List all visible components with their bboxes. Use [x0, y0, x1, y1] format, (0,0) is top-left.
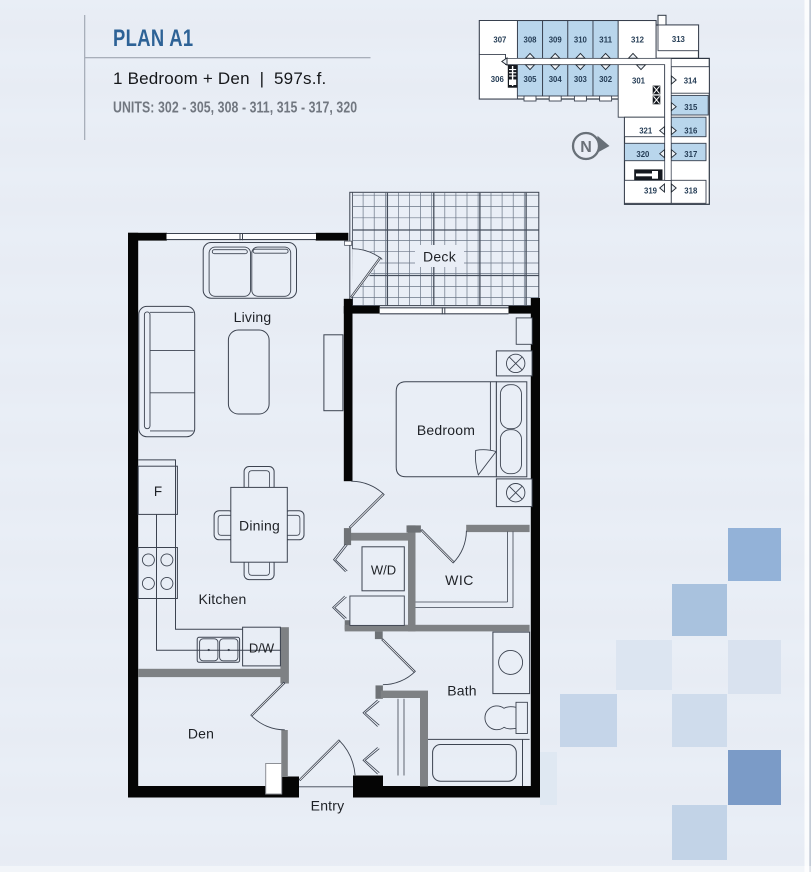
svg-text:310: 310 — [574, 35, 587, 45]
svg-text:309: 309 — [549, 35, 562, 45]
svg-text:311: 311 — [599, 35, 612, 45]
svg-text:320: 320 — [636, 149, 649, 159]
svg-text:Kitchen: Kitchen — [198, 591, 246, 607]
svg-text:UNITS: 302 - 305, 308 - 311, 3: UNITS: 302 - 305, 308 - 311, 315 - 317, … — [113, 99, 357, 117]
svg-text:N: N — [580, 139, 592, 156]
svg-text:307: 307 — [493, 35, 506, 45]
svg-text:F: F — [154, 484, 162, 499]
svg-text:321: 321 — [639, 126, 652, 136]
svg-text:Deck: Deck — [423, 249, 457, 265]
svg-text:313: 313 — [672, 34, 685, 44]
svg-text:Living: Living — [234, 309, 272, 325]
svg-text:301: 301 — [632, 75, 645, 85]
svg-text:308: 308 — [524, 35, 537, 45]
svg-text:Bedroom: Bedroom — [417, 422, 475, 438]
svg-text:318: 318 — [684, 185, 697, 195]
svg-text:W/D: W/D — [371, 563, 396, 578]
svg-text:305: 305 — [524, 74, 537, 84]
svg-text:314: 314 — [684, 75, 697, 85]
svg-text:319: 319 — [644, 185, 657, 195]
svg-text:D/W: D/W — [249, 641, 275, 656]
svg-text:Dining: Dining — [239, 518, 280, 534]
svg-text:304: 304 — [549, 74, 562, 84]
svg-text:316: 316 — [684, 126, 697, 136]
svg-text:315: 315 — [684, 102, 697, 112]
svg-text:306: 306 — [491, 74, 504, 84]
svg-text:Entry: Entry — [311, 798, 345, 814]
svg-text:1 Bedroom + Den | 597s.f.: 1 Bedroom + Den | 597s.f. — [113, 69, 326, 88]
svg-text:303: 303 — [574, 74, 587, 84]
svg-text:312: 312 — [631, 35, 644, 45]
svg-text:WIC: WIC — [445, 572, 474, 588]
svg-text:302: 302 — [599, 74, 612, 84]
svg-text:Bath: Bath — [447, 683, 477, 699]
svg-text:PLAN A1: PLAN A1 — [113, 23, 194, 51]
svg-text:317: 317 — [684, 149, 697, 159]
svg-text:Den: Den — [188, 726, 214, 742]
